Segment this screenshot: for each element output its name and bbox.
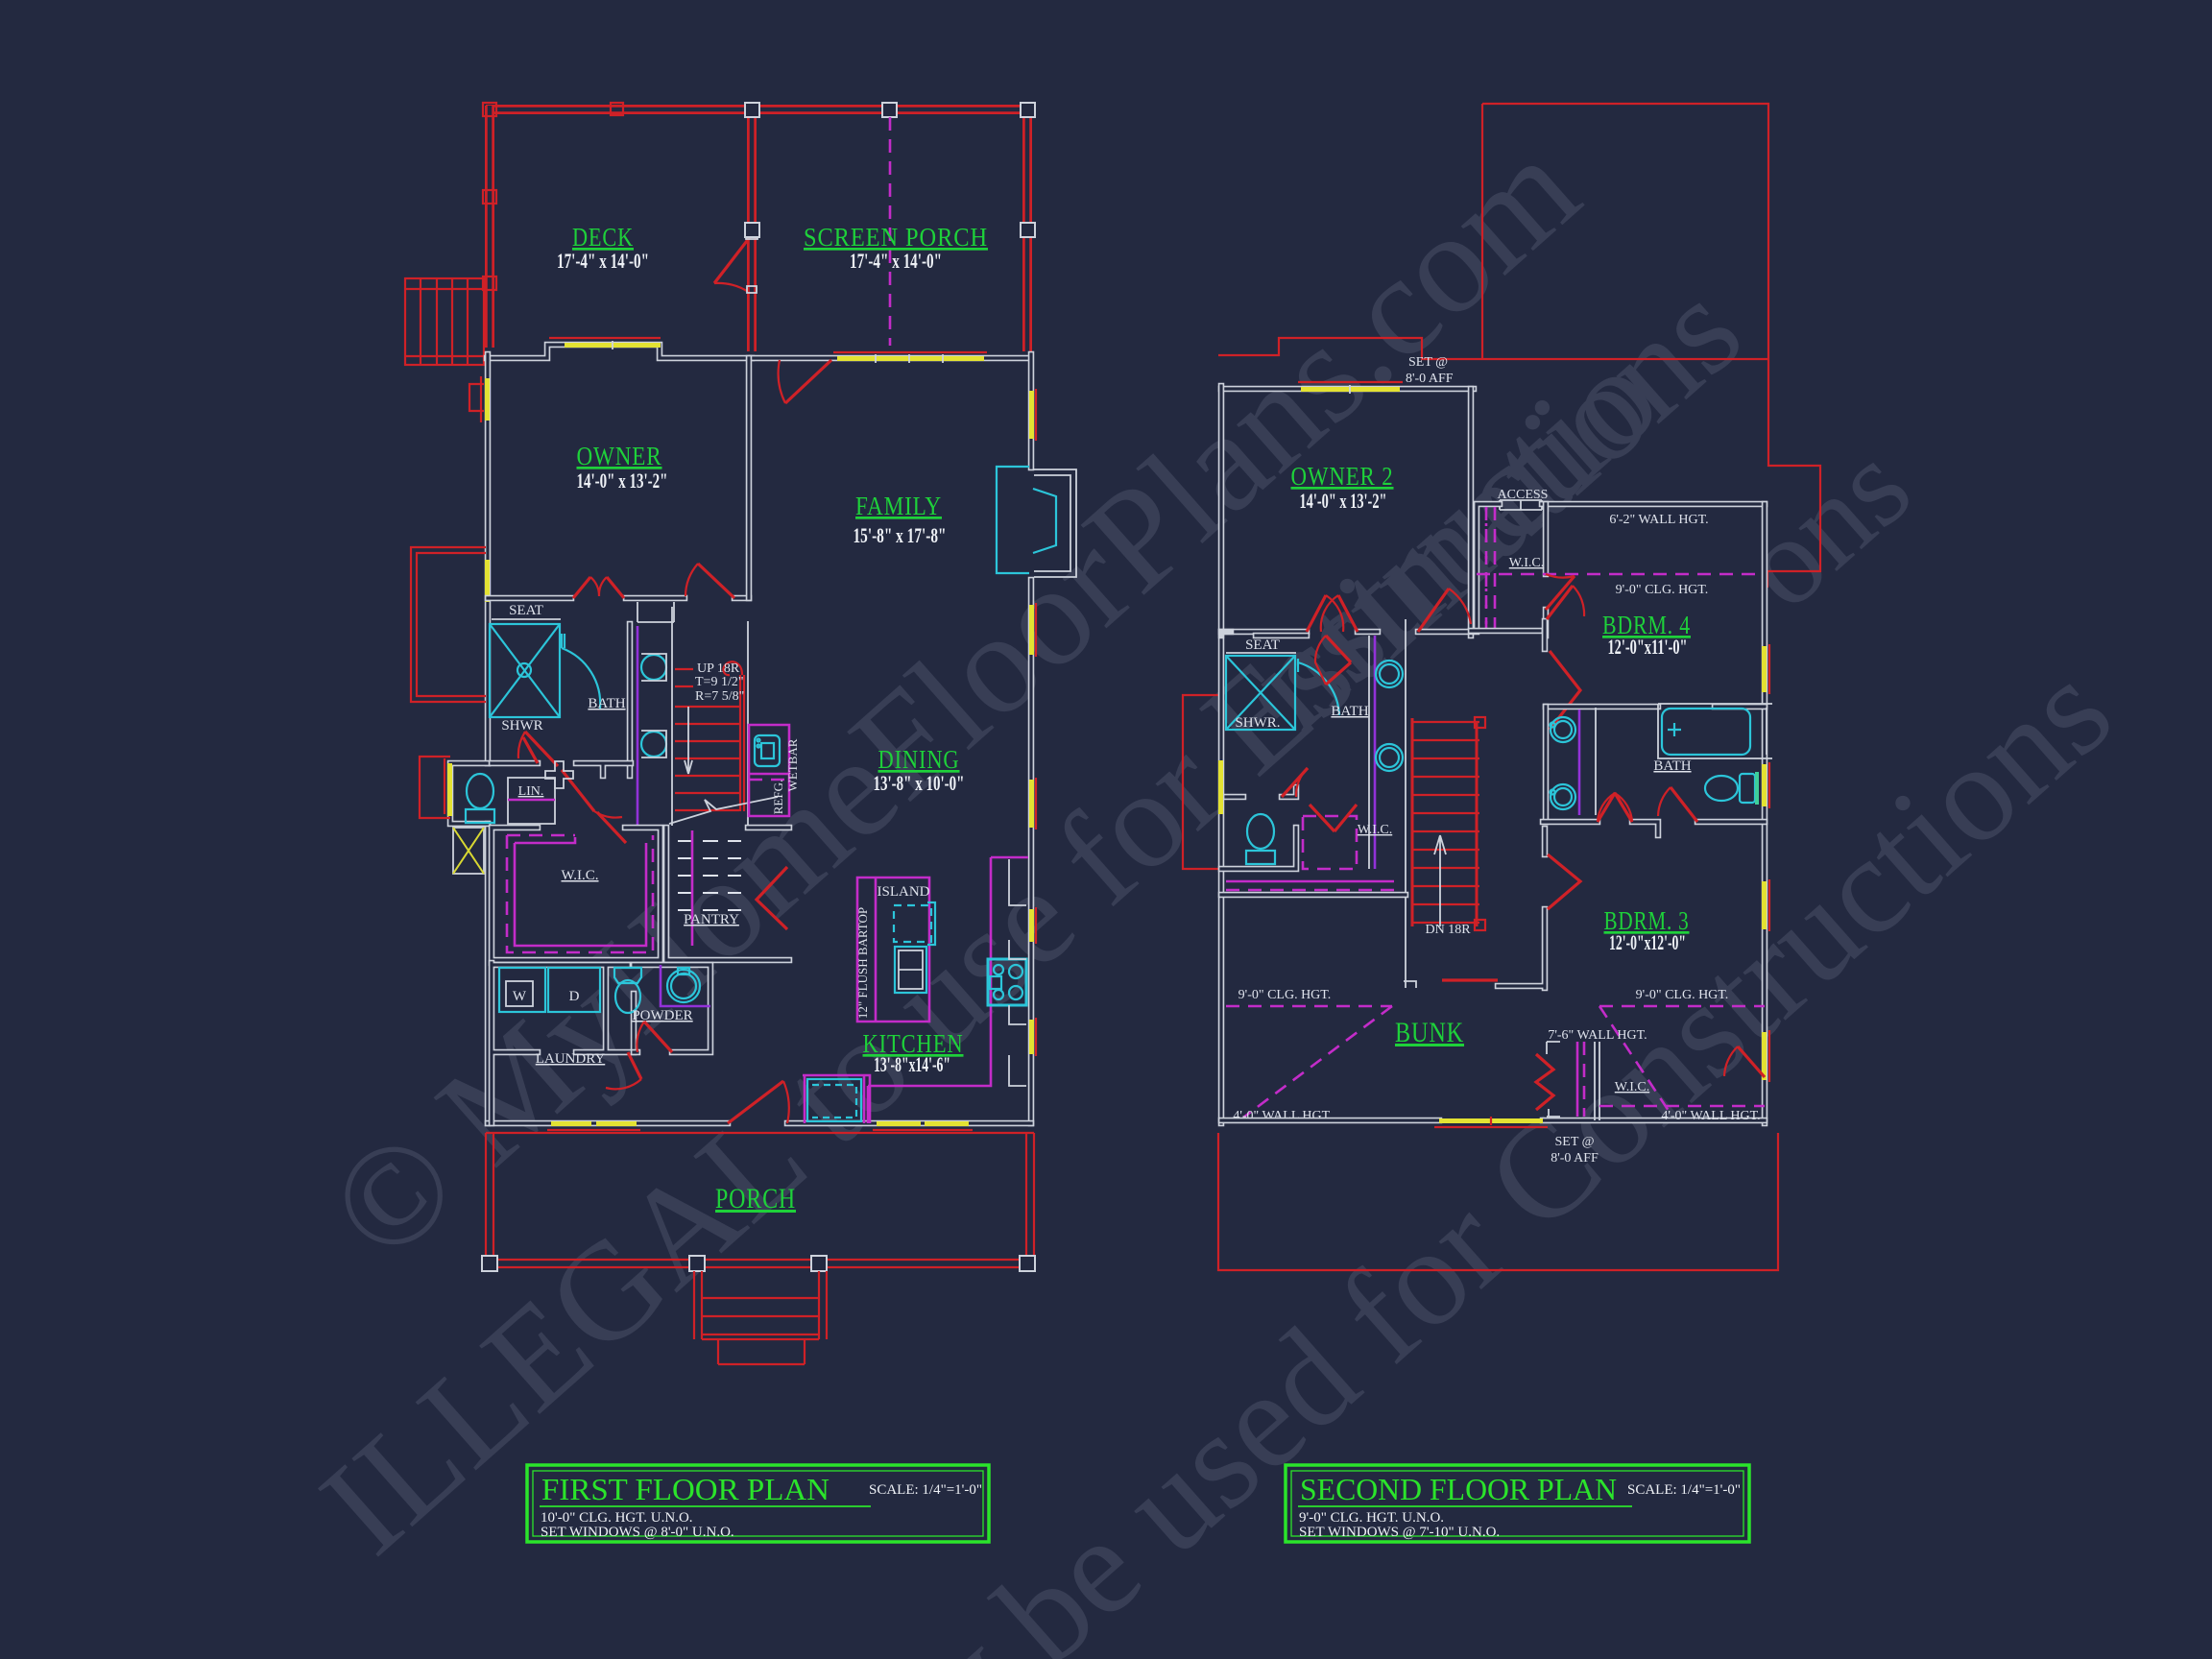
svg-text:12" FLUSH BARTOP: 12" FLUSH BARTOP [855, 907, 870, 1019]
svg-text:OWNER 2: OWNER 2 [1291, 462, 1394, 491]
svg-text:9'-0" CLG. HGT.: 9'-0" CLG. HGT. [1238, 988, 1332, 1002]
svg-text:PANTRY: PANTRY [684, 912, 739, 927]
svg-text:POWDER: POWDER [632, 1008, 692, 1023]
svg-text:6'-2" WALL HGT.: 6'-2" WALL HGT. [1609, 513, 1708, 527]
svg-text:SCREEN PORCH: SCREEN PORCH [804, 223, 988, 252]
svg-text:LAUNDRY: LAUNDRY [536, 1051, 606, 1067]
svg-text:FIRST FLOOR PLAN: FIRST FLOOR PLAN [541, 1472, 829, 1506]
svg-text:LIN.: LIN. [518, 784, 544, 799]
svg-text:T=9 1/2": T=9 1/2" [695, 675, 744, 689]
svg-text:4'-0" WALL HGT.: 4'-0" WALL HGT. [1661, 1109, 1760, 1123]
svg-text:W.I.C.: W.I.C. [1358, 823, 1392, 837]
svg-text:DN 18R: DN 18R [1425, 923, 1471, 937]
svg-text:13'-8" x 10'-0": 13'-8" x 10'-0" [874, 771, 965, 795]
svg-text:17'-4" x 14'-0": 17'-4" x 14'-0" [557, 249, 649, 273]
svg-text:9'-0" CLG. HGT.: 9'-0" CLG. HGT. [1636, 988, 1729, 1002]
svg-text:R=7 5/8": R=7 5/8" [695, 689, 744, 704]
svg-text:SEAT: SEAT [509, 603, 543, 618]
svg-text:SECOND FLOOR PLAN: SECOND FLOOR PLAN [1300, 1472, 1617, 1506]
svg-text:W.I.C.: W.I.C. [1509, 556, 1544, 570]
svg-text:SET WINDOWS @ 8'-0" U.N.O.: SET WINDOWS @ 8'-0" U.N.O. [541, 1525, 734, 1540]
svg-text:DINING: DINING [878, 745, 960, 774]
svg-text:OWNER: OWNER [577, 442, 662, 470]
svg-text:W.I.C.: W.I.C. [561, 868, 598, 883]
svg-text:BATH: BATH [588, 696, 625, 711]
svg-text:8'-0 AFF: 8'-0 AFF [1551, 1151, 1599, 1166]
svg-text:12'-0"x11'-0": 12'-0"x11'-0" [1608, 635, 1688, 659]
svg-text:FAMILY: FAMILY [855, 492, 942, 520]
svg-text:7'-6" WALL HGT.: 7'-6" WALL HGT. [1548, 1028, 1647, 1043]
svg-text:15'-8" x 17'-8": 15'-8" x 17'-8" [854, 523, 947, 547]
svg-text:17'-4" x 14'-0": 17'-4" x 14'-0" [850, 249, 942, 273]
svg-text:DECK: DECK [572, 223, 634, 252]
svg-text:BATH: BATH [1331, 704, 1368, 719]
svg-text:10'-0" CLG. HGT. U.N.O.: 10'-0" CLG. HGT. U.N.O. [541, 1510, 693, 1526]
svg-text:ISLAND: ISLAND [878, 884, 930, 900]
svg-text:SET WINDOWS @ 7'-10" U.N.O.: SET WINDOWS @ 7'-10" U.N.O. [1299, 1525, 1500, 1540]
svg-text:14'-0" x 13'-2": 14'-0" x 13'-2" [577, 469, 668, 493]
svg-text:W.I.C.: W.I.C. [1615, 1080, 1649, 1094]
svg-text:9'-0" CLG. HGT.: 9'-0" CLG. HGT. [1616, 583, 1709, 597]
svg-text:9'-0" CLG. HGT. U.N.O.: 9'-0" CLG. HGT. U.N.O. [1299, 1510, 1444, 1526]
svg-text:W: W [513, 989, 527, 1004]
svg-text:SHWR: SHWR [501, 718, 542, 733]
svg-text:BATH: BATH [1653, 758, 1691, 774]
svg-text:SHWR.: SHWR. [1235, 715, 1280, 731]
svg-text:UP 18R: UP 18R [697, 661, 740, 676]
svg-text:SET @: SET @ [1408, 355, 1448, 370]
svg-text:BUNK: BUNK [1395, 1017, 1464, 1048]
svg-text:SCALE: 1/4"=1'-0": SCALE: 1/4"=1'-0" [1627, 1482, 1741, 1498]
svg-text:8'-0 AFF: 8'-0 AFF [1406, 372, 1454, 386]
svg-text:14'-0" x 13'-2": 14'-0" x 13'-2" [1300, 489, 1387, 513]
svg-text:D: D [569, 989, 580, 1004]
svg-text:12'-0"x12'-0": 12'-0"x12'-0" [1609, 930, 1686, 954]
svg-text:SCALE: 1/4"=1'-0": SCALE: 1/4"=1'-0" [869, 1482, 982, 1498]
svg-text:WETBAR: WETBAR [785, 738, 800, 791]
svg-text:REFG.: REFG. [771, 780, 785, 814]
svg-text:SET @: SET @ [1554, 1135, 1594, 1149]
svg-text:PORCH: PORCH [715, 1183, 796, 1214]
svg-text:13'-8"x14'-6": 13'-8"x14'-6" [874, 1052, 950, 1076]
svg-text:SEAT: SEAT [1245, 637, 1280, 653]
